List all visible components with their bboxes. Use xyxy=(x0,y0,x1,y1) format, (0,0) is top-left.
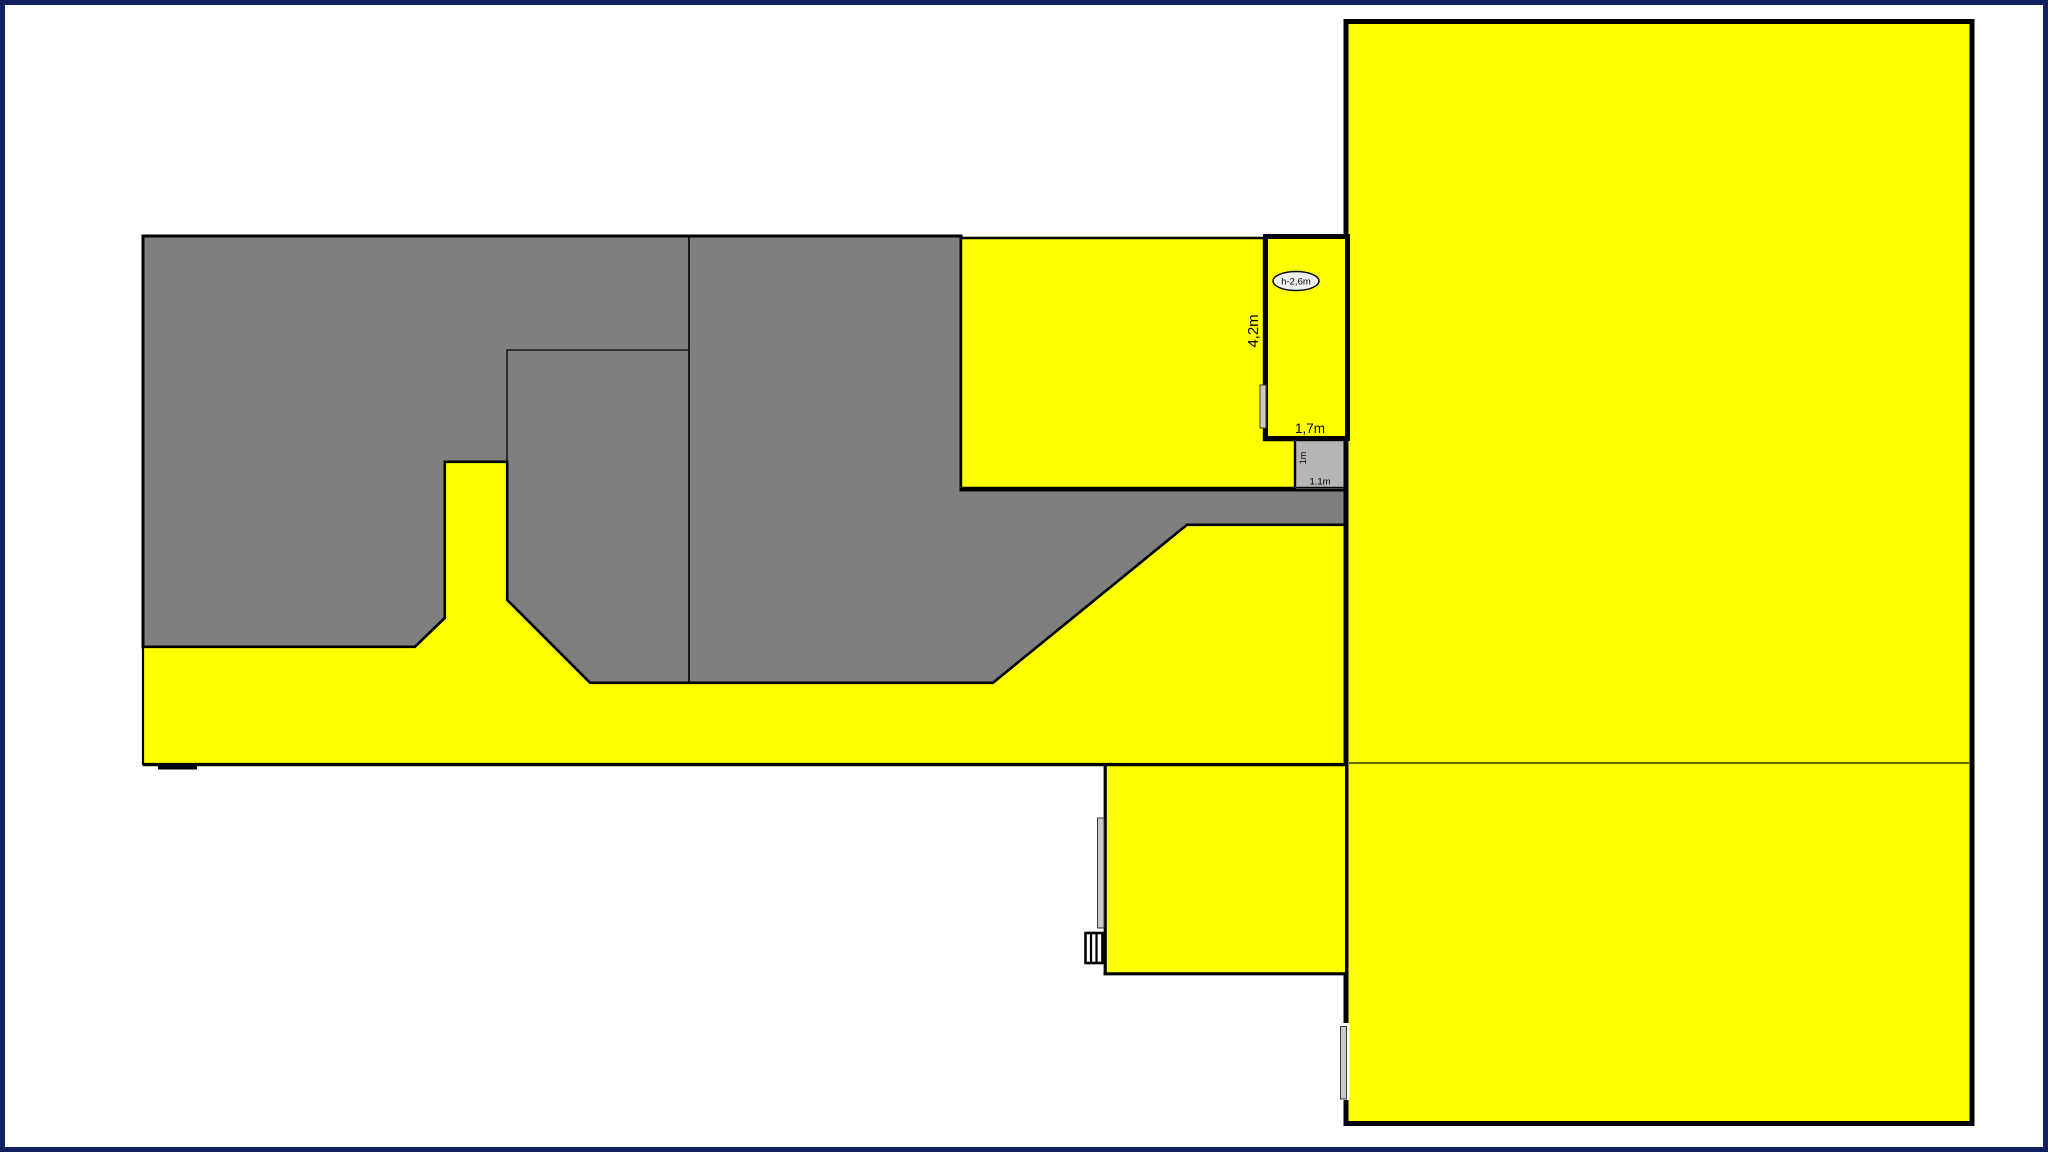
window-bar-large-room xyxy=(1341,1027,1347,1100)
lower-room-area xyxy=(1104,764,1345,974)
door-sill-mark xyxy=(158,764,197,770)
window-bar-small-room xyxy=(1260,385,1266,428)
dim-4-2m-label: 4,2m xyxy=(1245,314,1262,347)
ladder-icon xyxy=(1086,933,1103,963)
small-room xyxy=(1266,237,1348,439)
dim-1-1m-label: 1.1m xyxy=(1309,477,1330,488)
dim-1-7m-label: 1,7m xyxy=(1295,421,1325,436)
dim-1m-label: 1m xyxy=(1298,452,1308,465)
window-bar-lower-room xyxy=(1098,818,1105,928)
large-room-area xyxy=(1346,22,1972,1124)
floor-plan-drawing: h-2,6m 4,2m 1,7m 1m 1.1m xyxy=(0,0,2048,1152)
upper-hall-area xyxy=(961,238,1295,488)
floor-plan-canvas: h-2,6m 4,2m 1,7m 1m 1.1m xyxy=(0,0,2048,1152)
ceiling-height-label: h-2,6m xyxy=(1281,277,1311,288)
